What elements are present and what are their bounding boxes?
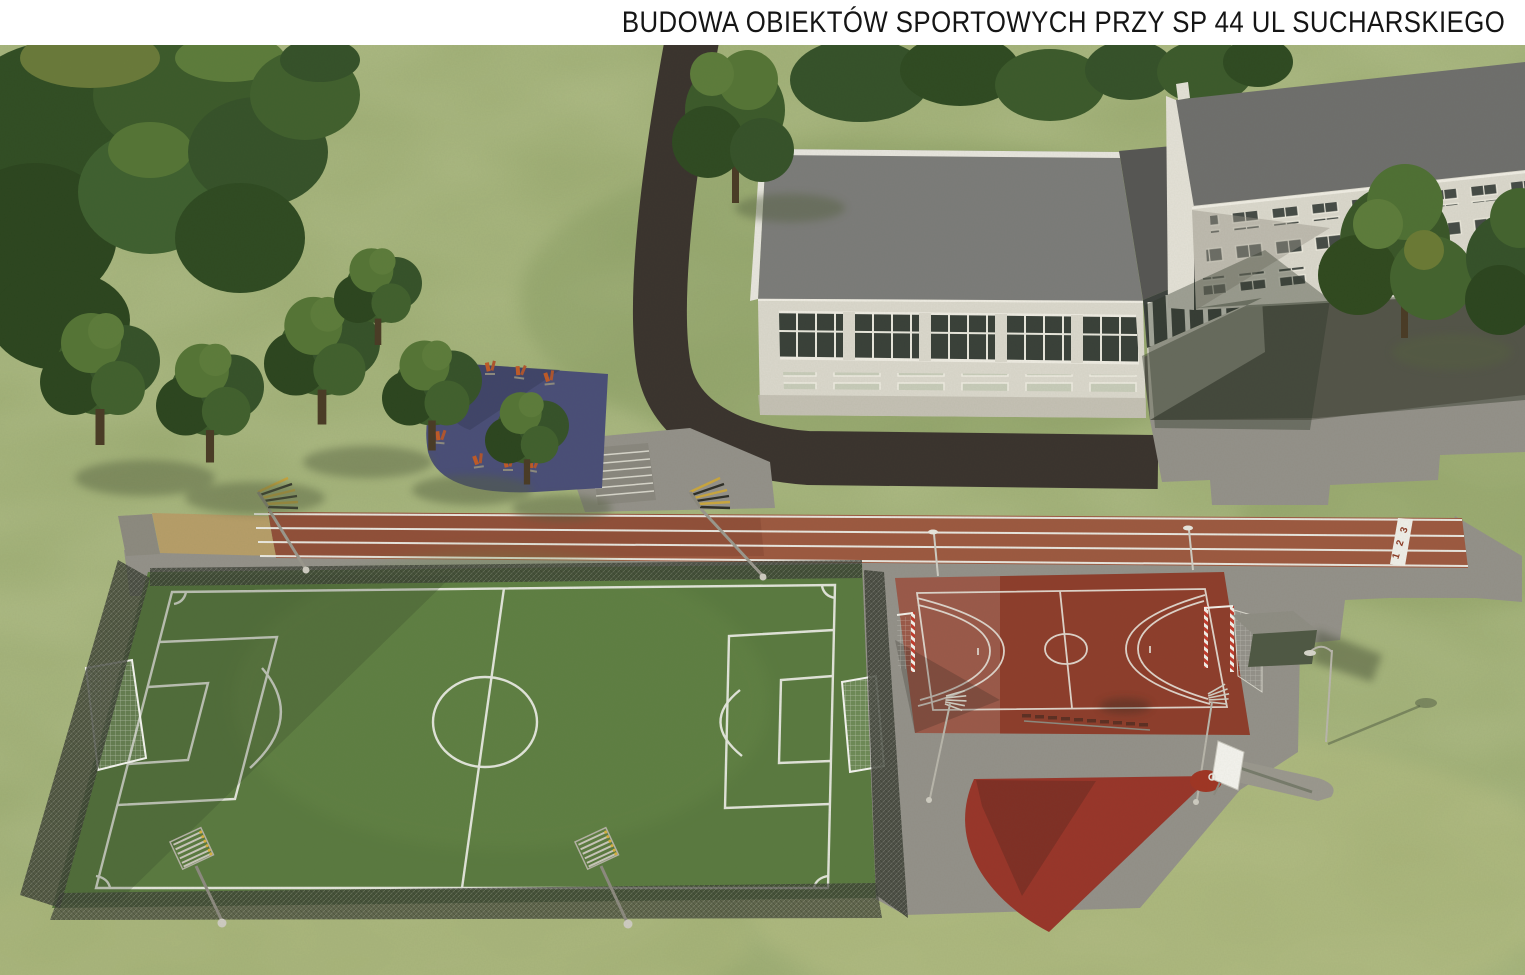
page-title: BUDOWA OBIEKTÓW SPORTOWYCH PRZY SP 44 UL… [622,6,1505,40]
render-grain [0,40,1525,975]
architectural-render: 3 2 1 [0,0,1525,975]
site-render: 3 2 1 [0,0,1525,975]
title-bar: BUDOWA OBIEKTÓW SPORTOWYCH PRZY SP 44 UL… [0,0,1525,45]
